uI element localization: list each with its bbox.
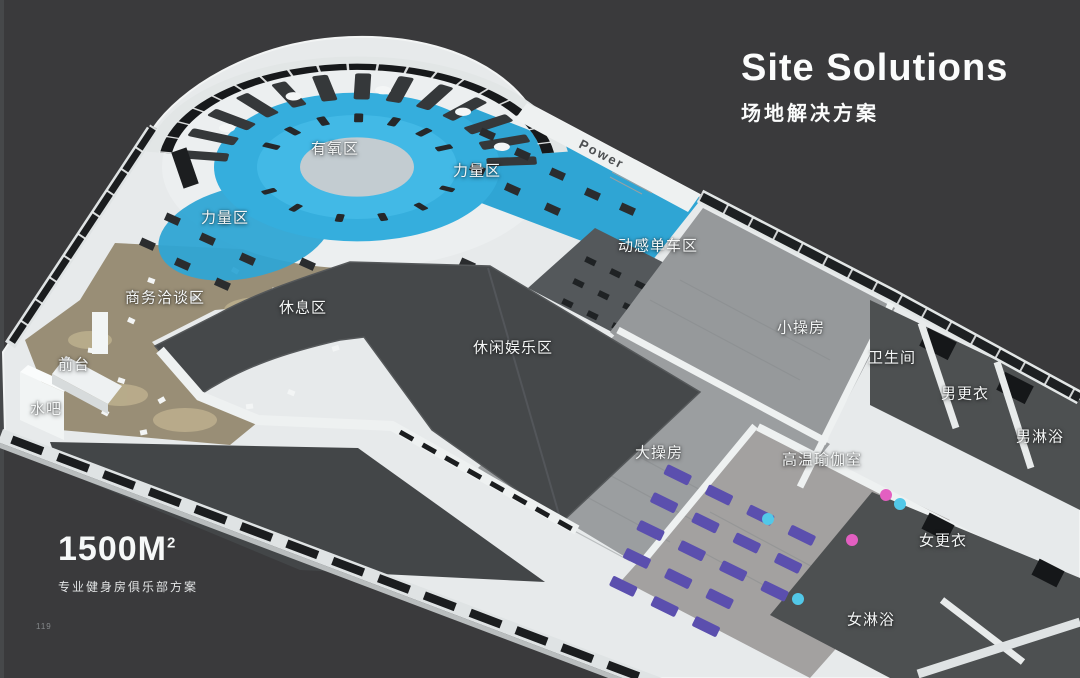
zone-label-womens-shower: 女淋浴 xyxy=(847,609,895,630)
title-block: Site Solutions 场地解决方案 xyxy=(741,48,1008,126)
floor-area-caption: 专业健身房俱乐部方案 xyxy=(58,578,198,595)
zone-label-womens-locker: 女更衣 xyxy=(919,530,967,551)
page-number: 119 xyxy=(36,622,52,631)
zone-label-hot-yoga: 高温瑜伽室 xyxy=(782,449,862,470)
zone-label-mens-shower: 男淋浴 xyxy=(1016,426,1064,447)
page-subtitle: 场地解决方案 xyxy=(741,97,1008,126)
zone-label-small-studio: 小操房 xyxy=(777,317,825,338)
floor-area-value: 1500M2 xyxy=(58,530,198,569)
zone-label-rest: 休息区 xyxy=(279,297,327,318)
zone-label-front-desk: 前台 xyxy=(58,354,90,375)
zone-label-spinning: 动感单车区 xyxy=(618,235,698,256)
zone-label-aerobic: 有氧区 xyxy=(311,138,359,159)
zone-label-water-bar: 水吧 xyxy=(30,398,62,419)
entry-column xyxy=(92,312,108,354)
page-edge-strip xyxy=(0,0,4,678)
zone-label-toilet: 卫生间 xyxy=(868,347,916,368)
zone-label-business: 商务洽谈区 xyxy=(125,287,205,308)
page-title: Site Solutions xyxy=(741,48,1008,90)
zone-label-big-studio: 大操房 xyxy=(635,442,683,463)
zone-label-mens-locker: 男更衣 xyxy=(941,383,989,404)
zone-label-strength-right: 力量区 xyxy=(453,160,501,181)
area-superscript: 2 xyxy=(167,535,176,552)
area-block: 1500M2 专业健身房俱乐部方案 xyxy=(58,530,198,595)
zone-label-leisure: 休闲娱乐区 xyxy=(473,337,553,358)
zone-label-strength-left: 力量区 xyxy=(201,207,249,228)
slide-site-solutions: Power xyxy=(0,0,1080,678)
